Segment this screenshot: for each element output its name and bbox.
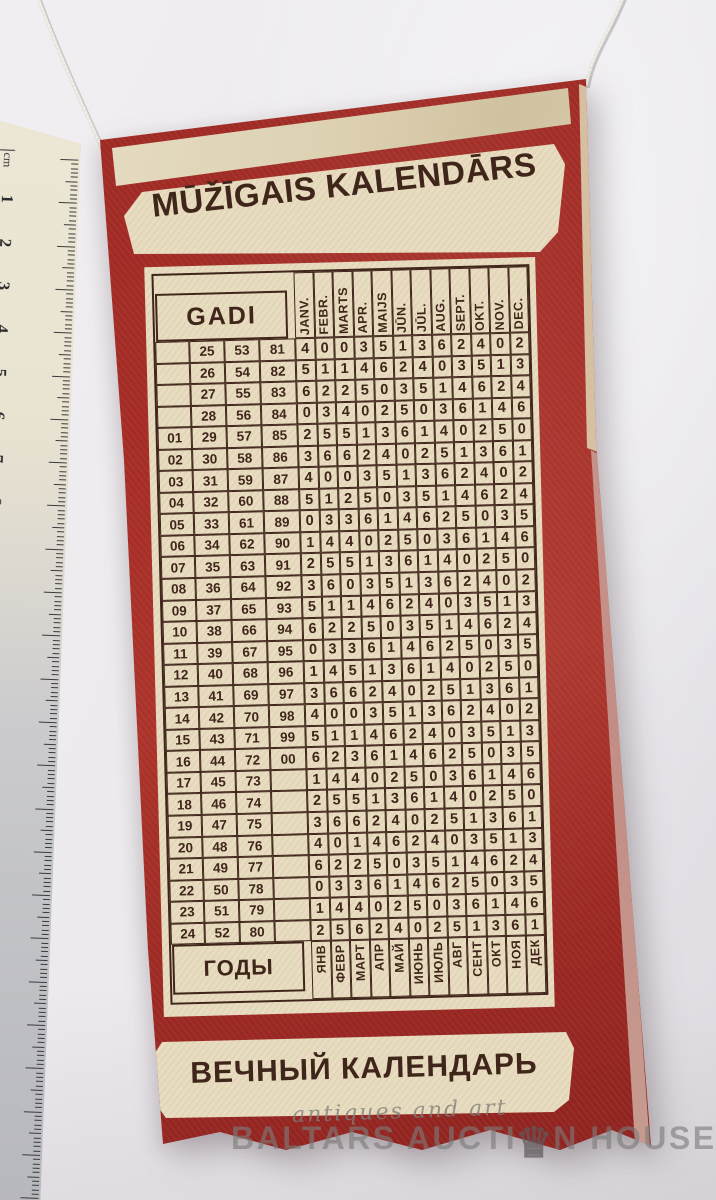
year-cell: 80 — [239, 921, 275, 943]
day-code-cell: 2 — [446, 873, 466, 895]
year-cell: 92 — [265, 575, 302, 597]
day-code-cell: 5 — [484, 829, 504, 851]
day-code-cell: 5 — [383, 702, 403, 724]
ruler-tick — [41, 947, 48, 948]
ruler-tick — [35, 1098, 42, 1099]
ruler-tick — [50, 726, 57, 727]
day-code-cell: 3 — [348, 875, 368, 897]
month-name-russian: ОКТ — [489, 940, 504, 967]
ruler-tick — [62, 402, 69, 403]
day-code-cell: 5 — [413, 378, 433, 400]
ruler-tick — [36, 1077, 43, 1078]
day-code-cell: 6 — [321, 574, 341, 596]
day-code-cell: 5 — [426, 852, 446, 874]
day-code-cell: 5 — [394, 400, 414, 422]
year-cell: 50 — [203, 879, 239, 901]
year-cell: 60 — [228, 490, 264, 512]
ruler-tick — [57, 536, 64, 537]
ruler-tick — [58, 518, 65, 519]
year-cell: 59 — [228, 468, 264, 490]
ruler-tick — [32, 1193, 39, 1194]
ruler-number: 5 — [0, 360, 11, 385]
day-code-cell: 6 — [524, 892, 544, 914]
day-code-cell: 3 — [298, 446, 318, 468]
day-code-cell: 4 — [523, 849, 543, 871]
day-code-cell: 6 — [472, 376, 492, 398]
ruler-tick — [54, 609, 61, 610]
ruler-tick — [50, 718, 57, 719]
day-code-cell: 5 — [520, 741, 540, 763]
month-header-cell: MARTS — [332, 271, 353, 337]
day-code-cell: 6 — [337, 444, 357, 466]
ruler-tick — [63, 367, 70, 368]
ruler-tick — [47, 804, 54, 805]
ruler-tick — [39, 721, 57, 723]
day-code-cell: 0 — [395, 443, 415, 465]
ruler-tick — [49, 752, 56, 753]
ruler-tick — [57, 544, 64, 545]
day-code-cell: 1 — [325, 725, 345, 747]
ruler-number: 10 — [0, 576, 2, 601]
year-cell — [274, 920, 311, 942]
day-code-cell: 0 — [365, 767, 385, 789]
day-code-cell: 0 — [463, 786, 483, 808]
day-code-cell: 3 — [486, 915, 506, 937]
ruler-tick — [34, 1142, 41, 1143]
day-code-cell: 4 — [388, 917, 408, 939]
day-code-cell: 5 — [477, 592, 497, 614]
day-code-cell: 6 — [306, 747, 326, 769]
day-code-cell: 5 — [447, 916, 467, 938]
ruler-number: 11 — [0, 620, 1, 645]
ruler-tick — [47, 795, 54, 796]
ruler-tick — [49, 735, 56, 736]
day-code-cell: 0 — [432, 356, 452, 378]
ruler-tick — [36, 960, 48, 961]
ruler-tick — [43, 904, 50, 905]
day-code-cell: 2 — [457, 571, 477, 593]
year-cell: 04 — [159, 492, 194, 514]
day-code-cell: 1 — [341, 595, 361, 617]
ruler-tick — [39, 990, 46, 991]
ruler-tick — [36, 1081, 43, 1082]
day-code-cell: 4 — [437, 550, 457, 572]
ruler-tick — [55, 588, 62, 589]
day-code-cell: 1 — [300, 532, 320, 554]
day-code-cell: 6 — [438, 571, 458, 593]
year-cell: 96 — [268, 661, 305, 683]
month-name-russian: ЯНВ — [314, 945, 329, 974]
year-cell: 75 — [237, 813, 273, 835]
year-cell — [155, 341, 190, 363]
day-code-cell: 4 — [495, 527, 515, 549]
ruler-tick — [59, 480, 66, 481]
year-cell: 34 — [194, 534, 230, 556]
day-code-cell: 1 — [344, 724, 364, 746]
day-code-cell: 6 — [404, 788, 424, 810]
ruler-tick — [35, 808, 53, 810]
day-code-cell: 3 — [354, 336, 374, 358]
day-code-cell: 1 — [421, 658, 441, 680]
day-code-cell: 5 — [355, 379, 375, 401]
day-code-cell: 2 — [375, 400, 395, 422]
month-header-cell: NOV. — [488, 267, 509, 333]
day-code-cell: 5 — [496, 548, 516, 570]
day-code-cell: 6 — [368, 875, 388, 897]
ruler-tick — [32, 1046, 44, 1047]
ruler-tick — [43, 899, 50, 900]
day-code-cell: 5 — [514, 505, 534, 527]
gadi-label: GADI — [155, 291, 288, 342]
year-cell: 13 — [164, 686, 199, 708]
day-code-cell: 5 — [377, 465, 397, 487]
day-code-cell: 5 — [299, 489, 319, 511]
ruler-tick — [48, 769, 55, 770]
day-code-cell: 2 — [482, 786, 502, 808]
day-code-cell: 2 — [348, 854, 368, 876]
day-code-cell: 3 — [523, 828, 543, 850]
day-code-cell: 5 — [416, 486, 436, 508]
day-code-cell: 6 — [347, 811, 367, 833]
year-cell: 37 — [196, 599, 232, 621]
ruler-tick — [55, 575, 62, 576]
year-cell: 47 — [202, 814, 238, 836]
ruler-tick — [62, 415, 69, 416]
day-code-cell: 2 — [494, 483, 514, 505]
day-code-cell: 4 — [440, 657, 460, 679]
day-code-cell: 4 — [477, 570, 497, 592]
year-cell: 31 — [193, 469, 229, 491]
day-code-cell: 6 — [324, 682, 344, 704]
year-cell: 85 — [261, 424, 298, 446]
ruler-tick — [46, 813, 53, 814]
day-code-cell: 1 — [378, 508, 398, 530]
year-cell — [156, 384, 191, 406]
ruler-tick — [36, 1072, 43, 1073]
day-code-cell: 6 — [499, 677, 519, 699]
year-cell: 03 — [159, 470, 194, 492]
year-cell: 28 — [191, 405, 227, 427]
ruler-tick — [51, 696, 58, 697]
day-code-cell: 3 — [446, 894, 466, 916]
month-footer-cell: МАРТ — [350, 940, 371, 998]
ruler-tick — [50, 713, 57, 714]
day-code-cell: 1 — [497, 591, 517, 613]
day-code-cell: 3 — [480, 678, 500, 700]
day-code-cell: 6 — [521, 763, 541, 785]
day-code-cell: 1 — [482, 764, 502, 786]
day-code-cell: 6 — [515, 526, 535, 548]
day-code-cell: 2 — [316, 380, 336, 402]
ruler-tick — [42, 921, 49, 922]
day-code-cell: 0 — [485, 872, 505, 894]
ruler-tick — [37, 1042, 44, 1043]
day-code-cell: 2 — [421, 679, 441, 701]
year-cell: 66 — [232, 619, 268, 641]
ruler-tick — [44, 860, 51, 861]
year-cell: 52 — [204, 922, 240, 944]
ruler-tick — [55, 583, 62, 584]
ruler-tick — [43, 891, 50, 892]
day-code-cell: 3 — [339, 509, 359, 531]
ruler-tick — [38, 1038, 45, 1039]
ruler-tick — [46, 817, 53, 818]
day-code-cell: 1 — [319, 488, 339, 510]
ruler-tick — [57, 523, 64, 524]
month-footer-cell: ДЕК — [525, 935, 546, 993]
ruler-tick — [22, 1154, 40, 1156]
ruler-tick — [63, 371, 70, 372]
day-code-cell: 0 — [442, 722, 462, 744]
day-code-cell: 1 — [445, 851, 465, 873]
year-cell: 83 — [260, 381, 297, 403]
day-code-cell: 6 — [432, 334, 452, 356]
year-cell: 82 — [260, 360, 297, 382]
day-code-cell: 1 — [315, 359, 335, 381]
day-code-cell: 0 — [315, 337, 335, 359]
ruler-tick — [51, 692, 58, 693]
year-cell: 93 — [266, 597, 303, 619]
day-code-cell: 0 — [377, 487, 397, 509]
day-code-cell: 3 — [495, 505, 515, 527]
day-code-cell: 5 — [336, 423, 356, 445]
ruler-tick — [29, 1133, 41, 1134]
month-footer-cell: ЯНВ — [311, 941, 332, 999]
day-code-cell: 3 — [329, 876, 349, 898]
ruler-tick — [24, 1111, 42, 1113]
calendar-pennant: MŪŽĪGAIS KALENDĀRS GADIJANV.FEBR.MARTSAP… — [90, 70, 670, 1170]
calendar-header-corner: GADI — [153, 272, 295, 342]
day-code-cell: 3 — [360, 573, 380, 595]
year-cell: 05 — [160, 513, 195, 535]
ruler-tick — [39, 999, 46, 1000]
day-code-cell: 2 — [322, 617, 342, 639]
day-code-cell: 4 — [323, 660, 343, 682]
day-code-cell: 5 — [492, 419, 512, 441]
day-code-cell: 2 — [307, 790, 327, 812]
ruler-tick — [38, 1016, 45, 1017]
year-cell: 39 — [197, 642, 233, 664]
ruler-tick — [52, 666, 59, 667]
ruler-tick — [48, 761, 55, 762]
ruler-tick — [36, 1085, 43, 1086]
day-code-cell: 0 — [496, 570, 516, 592]
day-code-cell: 3 — [433, 399, 453, 421]
day-code-cell: 6 — [358, 509, 378, 531]
ruler-tick — [61, 436, 68, 437]
day-code-cell: 3 — [301, 575, 321, 597]
month-name-russian: МАЙ — [392, 943, 407, 973]
ruler-tick — [41, 956, 48, 957]
ruler-tick — [54, 622, 61, 623]
ruler-tick — [40, 968, 47, 969]
day-code-cell: 3 — [379, 551, 399, 573]
day-code-cell: 5 — [367, 853, 387, 875]
month-header-cell: APR. — [352, 270, 373, 336]
day-code-cell: 1 — [503, 828, 523, 850]
ruler-tick — [59, 488, 66, 489]
year-cell: 25 — [189, 340, 225, 362]
day-code-cell: 1 — [321, 596, 341, 618]
day-code-cell: 3 — [382, 659, 402, 681]
ruler-tick — [52, 674, 59, 675]
ruler-tick — [51, 687, 58, 688]
day-code-cell: 0 — [500, 699, 520, 721]
month-name-russian: НОЯ — [509, 940, 524, 969]
year-cell: 94 — [267, 618, 304, 640]
month-name-russian: ИЮЛЬ — [431, 942, 446, 984]
month-name-russian: ФЕВР — [333, 944, 348, 983]
month-name-latvian: JŪN. — [395, 302, 410, 333]
day-code-cell: 3 — [375, 422, 395, 444]
day-code-cell: 5 — [419, 615, 439, 637]
day-code-cell: 2 — [513, 461, 533, 483]
day-code-cell: 2 — [378, 530, 398, 552]
ruler-tick — [44, 878, 51, 879]
day-code-cell: 0 — [457, 549, 477, 571]
ruler-tick — [48, 756, 55, 757]
day-code-cell: 0 — [417, 529, 437, 551]
day-code-cell: 6 — [302, 618, 322, 640]
day-code-cell: 1 — [454, 441, 474, 463]
ruler-tick — [32, 1181, 39, 1182]
day-code-cell: 4 — [308, 833, 328, 855]
year-cell: 58 — [227, 447, 263, 469]
day-code-cell: 6 — [441, 700, 461, 722]
ruler-tick — [40, 678, 58, 680]
day-code-cell: 6 — [364, 746, 384, 768]
ruler-tick — [55, 579, 62, 580]
ruler-tick — [64, 358, 71, 359]
day-code-cell: 1 — [424, 787, 444, 809]
year-cell: 71 — [234, 727, 270, 749]
day-code-cell: 2 — [461, 700, 481, 722]
day-code-cell: 2 — [325, 747, 345, 769]
day-code-cell: 6 — [349, 918, 369, 940]
day-code-cell: 0 — [515, 548, 535, 570]
day-code-cell: 2 — [519, 698, 539, 720]
ruler-tick — [52, 653, 59, 654]
day-code-cell: 0 — [445, 830, 465, 852]
month-name-latvian: MARTS — [336, 287, 351, 334]
ruler-tick — [32, 1172, 39, 1173]
day-code-cell: 4 — [452, 377, 472, 399]
ruler-tick — [34, 1124, 41, 1125]
day-code-cell: 6 — [386, 831, 406, 853]
ruler-tick — [37, 1051, 44, 1052]
day-code-cell: 1 — [466, 915, 486, 937]
day-code-cell: 3 — [498, 634, 518, 656]
ruler-tick — [50, 709, 57, 710]
day-code-cell: 0 — [309, 876, 329, 898]
day-code-cell: 3 — [357, 466, 377, 488]
day-code-cell: 1 — [396, 464, 416, 486]
day-code-cell: 1 — [512, 440, 532, 462]
day-code-cell: 1 — [414, 421, 434, 443]
day-code-cell: 2 — [338, 488, 358, 510]
day-code-cell: 0 — [478, 635, 498, 657]
day-code-cell: 6 — [426, 873, 446, 895]
ruler-tick — [38, 1033, 45, 1034]
day-code-cell: 3 — [400, 615, 420, 637]
ruler-tick — [42, 934, 49, 935]
year-cell: 81 — [259, 338, 296, 360]
year-cell: 86 — [262, 446, 299, 468]
ruler-number: 9 — [0, 533, 4, 558]
ruler-tick — [43, 908, 50, 909]
month-footer-cell: ФЕВР — [330, 940, 351, 998]
day-code-cell: 4 — [413, 356, 433, 378]
year-cell: 36 — [195, 577, 231, 599]
month-name-latvian: JŪL. — [414, 303, 429, 332]
year-cell: 18 — [167, 793, 202, 815]
day-code-cell: 1 — [522, 806, 542, 828]
day-code-cell: 3 — [319, 510, 339, 532]
day-code-cell: 3 — [406, 852, 426, 874]
day-code-cell: 1 — [464, 808, 484, 830]
day-code-cell: 4 — [349, 897, 369, 919]
ruler-tick — [53, 627, 60, 628]
day-code-cell: 6 — [475, 484, 495, 506]
day-code-cell: 4 — [422, 722, 442, 744]
day-code-cell: 4 — [434, 420, 454, 442]
year-cell: 24 — [170, 923, 205, 945]
ruler-tick — [34, 1120, 41, 1121]
day-code-cell: 0 — [355, 401, 375, 423]
day-code-cell: 2 — [451, 334, 471, 356]
day-code-cell: 2 — [497, 613, 517, 635]
ruler-tick — [47, 800, 54, 801]
ruler-tick — [50, 705, 57, 706]
day-code-cell: 4 — [455, 485, 475, 507]
ruler-tick — [37, 765, 55, 767]
day-code-cell: 0 — [521, 785, 541, 807]
ruler-tick — [34, 1137, 41, 1138]
day-code-cell: 4 — [480, 699, 500, 721]
day-code-cell: 4 — [443, 787, 463, 809]
ruler-tick — [41, 951, 48, 952]
year-cell: 21 — [169, 858, 204, 880]
day-code-cell: 4 — [465, 851, 485, 873]
ruler-tick — [57, 397, 69, 398]
day-code-cell: 1 — [399, 572, 419, 594]
ruler-tick — [37, 1064, 44, 1065]
year-cell: 51 — [204, 900, 240, 922]
ruler-tick — [42, 912, 49, 913]
ruler-tick — [54, 484, 66, 485]
day-code-cell: 4 — [401, 637, 421, 659]
year-cell: 10 — [163, 621, 198, 643]
day-code-cell: 5 — [302, 596, 322, 618]
year-cell: 61 — [229, 512, 265, 534]
day-code-cell: 4 — [339, 531, 359, 553]
day-code-cell: 4 — [360, 595, 380, 617]
ruler-tick — [49, 731, 56, 732]
day-code-cell: 2 — [440, 636, 460, 658]
day-code-cell: 3 — [397, 486, 417, 508]
day-code-cell: 0 — [368, 896, 388, 918]
day-code-cell: 4 — [517, 612, 537, 634]
ruler-tick — [64, 350, 71, 351]
ruler-tick — [53, 648, 60, 649]
day-code-cell: 5 — [517, 634, 537, 656]
year-cell — [272, 812, 309, 834]
month-name-latvian: MAIJS — [375, 292, 390, 333]
day-code-cell: 3 — [501, 742, 521, 764]
ruler-tick — [40, 964, 47, 965]
ruler-tick — [27, 1024, 45, 1026]
ruler-tick — [45, 839, 52, 840]
